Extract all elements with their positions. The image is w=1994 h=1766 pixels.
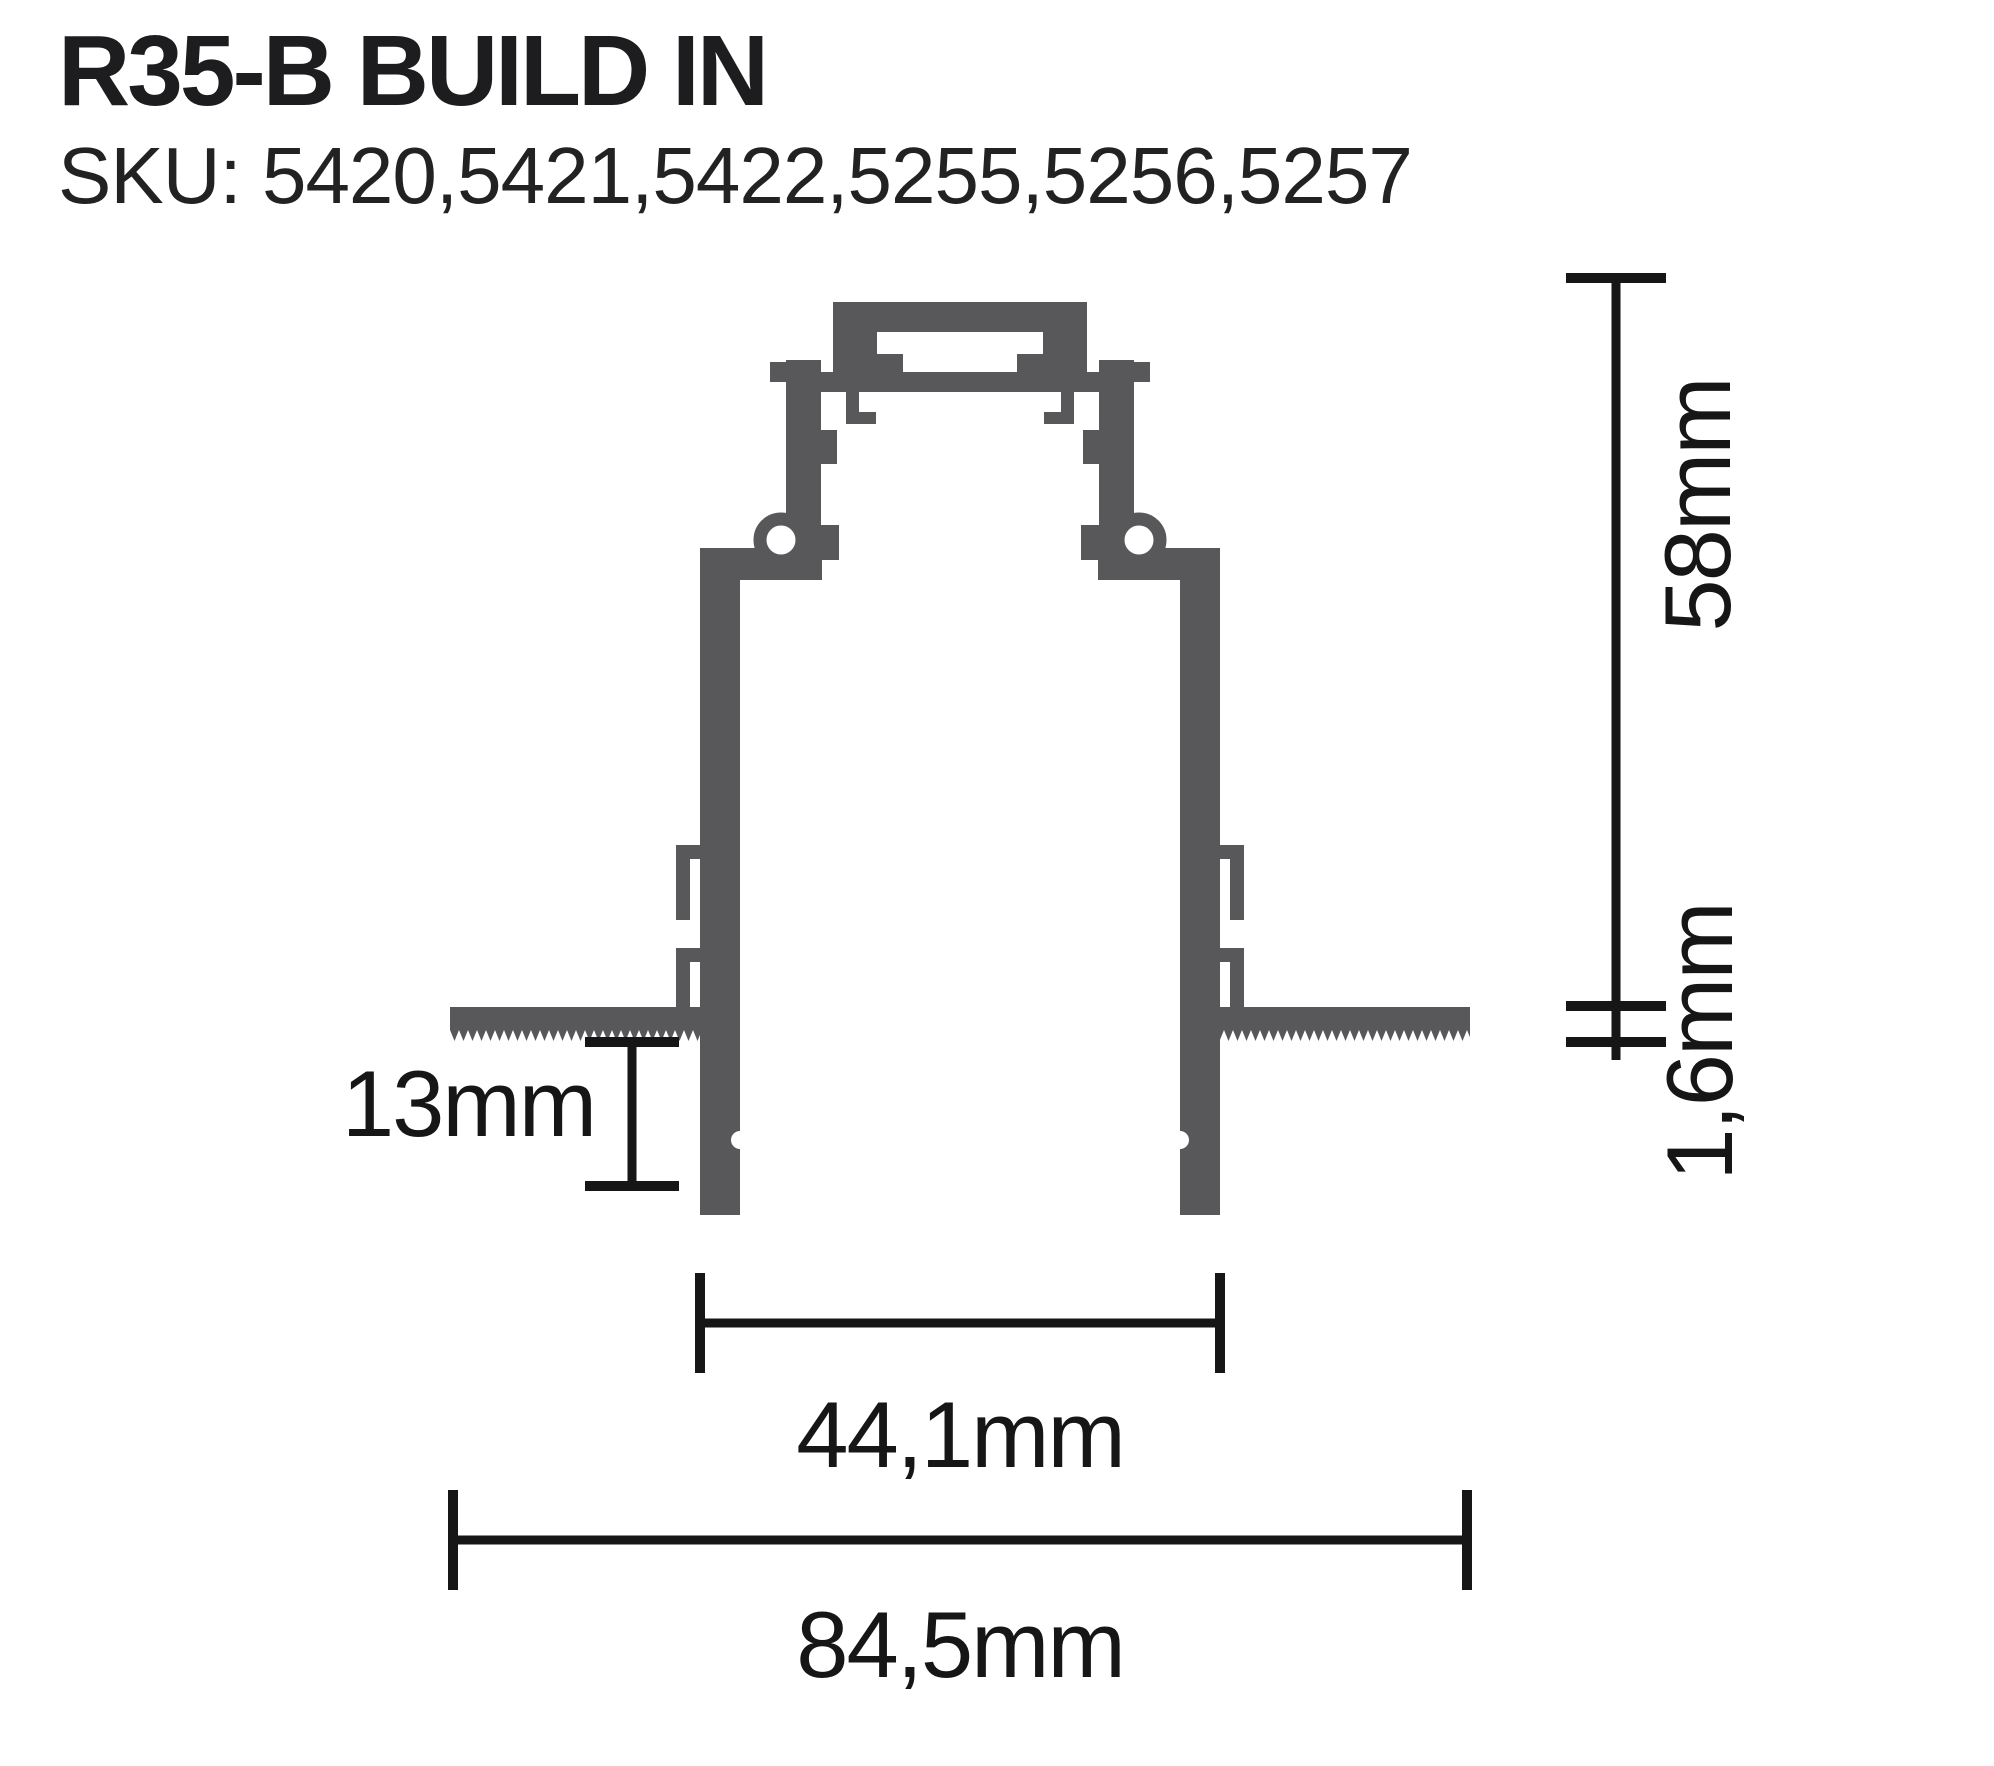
- cap-hook-right-foot: [1044, 412, 1074, 424]
- body-wall-left: [700, 560, 740, 1215]
- flange-serration-right: [1220, 1030, 1470, 1042]
- cap-top-bar: [833, 302, 1087, 332]
- wall-tab-upper-right-bar: [1230, 845, 1244, 920]
- wall-tab-lower-right-bar: [1230, 948, 1244, 1008]
- screw-boss-left: [760, 519, 802, 561]
- wall-tab-lower-left-bar: [676, 948, 690, 1008]
- screw-boss-right: [1118, 519, 1160, 561]
- wall-notch-right: [1171, 1131, 1189, 1149]
- wall-tab-upper-left-bar: [676, 845, 690, 920]
- cap-hook-left-foot: [846, 412, 876, 424]
- dim-label-body-width: 44,1mm: [710, 1388, 1210, 1482]
- dim-label-flange-thickness: 1,6mm: [1650, 892, 1750, 1192]
- neck-inner-hook-left: [821, 430, 837, 464]
- cap-web: [786, 372, 1134, 392]
- neck-top-nub-right: [1134, 362, 1150, 382]
- flange-left: [450, 1007, 700, 1030]
- channel-lip-left: [877, 354, 903, 372]
- dim-label-overall-height: 58mm: [1648, 355, 1748, 655]
- neck-top-nub-left: [770, 362, 786, 382]
- body-wall-right: [1180, 560, 1220, 1215]
- dim-label-flange-width: 84,5mm: [710, 1598, 1210, 1692]
- neck-inner-hook-right: [1083, 430, 1099, 464]
- dim-label-recess-depth: 13mm: [270, 1048, 595, 1160]
- channel-lip-right: [1017, 354, 1043, 372]
- wall-notch-left: [731, 1131, 749, 1149]
- profile-cross-section-drawing: [0, 0, 1994, 1766]
- page: R35-B BUILD IN SKU: 5420,5421,5422,5255,…: [0, 0, 1994, 1766]
- neck-bottom-hook-left: [821, 525, 839, 560]
- flange-right: [1220, 1007, 1470, 1030]
- neck-bottom-hook-right: [1081, 525, 1099, 560]
